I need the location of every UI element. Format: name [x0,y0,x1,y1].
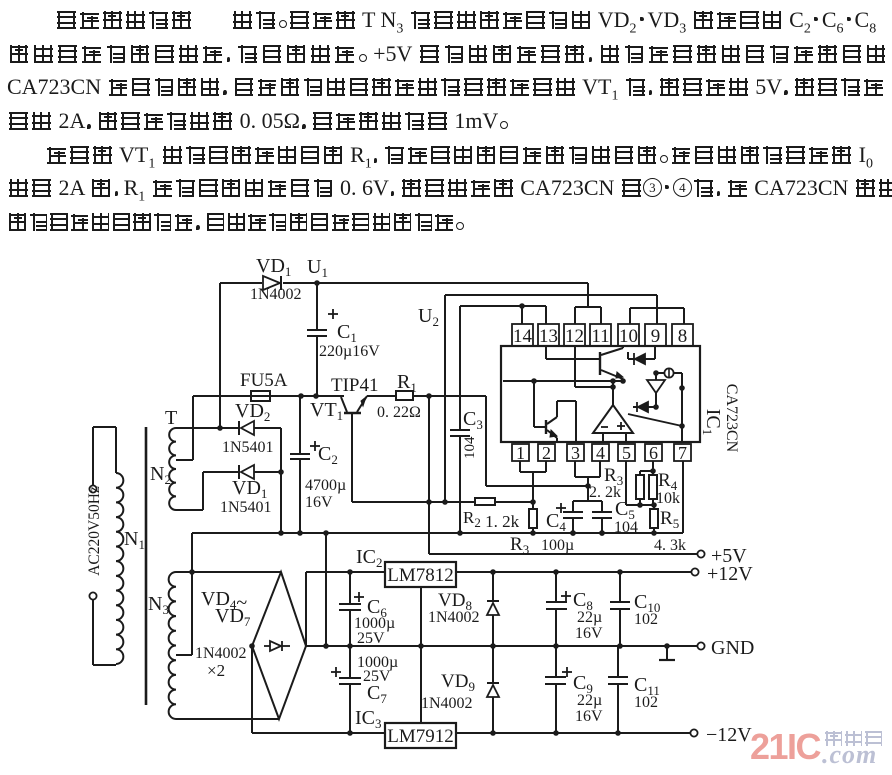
svg-text:7: 7 [678,443,687,463]
svg-text:T: T [165,407,177,429]
svg-text:4. 3k: 4. 3k [654,537,686,554]
svg-text:LM7912: LM7912 [387,726,454,747]
svg-text:VD1: VD1 [232,477,267,501]
svg-text:1N4002: 1N4002 [421,695,473,712]
svg-text:0. 22Ω: 0. 22Ω [377,404,421,421]
svg-text:R1: R1 [397,371,417,395]
svg-text:10: 10 [619,326,638,347]
svg-text:N2: N2 [150,463,171,487]
svg-text:IC3: IC3 [355,707,382,731]
svg-text:VD1: VD1 [256,255,291,279]
svg-text:IC1: IC1 [700,409,724,436]
svg-text:1N4002: 1N4002 [195,645,247,662]
svg-text:1: 1 [516,443,525,463]
svg-text:6: 6 [649,443,658,463]
svg-text:C1: C1 [337,321,357,345]
svg-text:104: 104 [462,436,478,459]
svg-text:14: 14 [513,326,533,347]
svg-text:TIP41: TIP41 [331,375,379,396]
svg-text:CA723CN: CA723CN [723,384,740,453]
svg-text:13: 13 [539,326,558,347]
svg-text:C3: C3 [463,408,483,432]
svg-text:3: 3 [571,443,580,463]
svg-text:−12V: −12V [706,724,752,746]
svg-text:LM7812: LM7812 [387,565,454,586]
svg-text:100µ: 100µ [541,537,574,554]
svg-text:12: 12 [565,326,584,347]
svg-text:1N4002: 1N4002 [250,286,302,303]
svg-text:N3: N3 [148,593,169,617]
svg-text:9: 9 [651,326,661,347]
svg-text:R5: R5 [660,508,679,531]
svg-text:16V: 16V [575,708,603,725]
svg-text:N1: N1 [124,528,145,552]
svg-text:C4: C4 [546,510,566,534]
svg-text:FU5A: FU5A [240,370,288,391]
svg-text:1N5401: 1N5401 [222,439,274,456]
svg-text:R3: R3 [510,534,529,557]
svg-text:1N5401: 1N5401 [220,499,272,516]
svg-text:VD9: VD9 [441,671,475,694]
svg-text:102: 102 [634,611,658,628]
svg-text:2: 2 [542,443,551,463]
svg-text:8: 8 [678,326,688,347]
svg-text:IC2: IC2 [356,546,383,570]
svg-text:4700µ: 4700µ [305,477,346,494]
svg-text:5: 5 [622,443,631,463]
svg-text:GND: GND [711,637,754,659]
svg-text:R2 1. 2k: R2 1. 2k [463,508,520,531]
svg-text:1N4002: 1N4002 [428,609,480,626]
svg-text:22µ: 22µ [577,692,602,709]
svg-text:C2: C2 [318,443,338,467]
svg-text:C7: C7 [367,682,387,706]
svg-text:+12V: +12V [707,563,753,585]
svg-text:16V: 16V [305,494,333,511]
svg-text:22µ: 22µ [577,609,602,626]
svg-text:10k: 10k [656,490,680,507]
svg-text:AC220V50Hz: AC220V50Hz [86,486,103,576]
svg-text:VD2: VD2 [235,400,270,424]
svg-text:U2: U2 [418,305,439,329]
svg-text:×2: ×2 [207,661,225,680]
svg-text:U1: U1 [307,256,328,280]
svg-text:220µ16V: 220µ16V [319,343,380,360]
svg-text:VT1: VT1 [310,399,343,423]
svg-text:25V: 25V [357,630,385,647]
svg-text:4: 4 [596,443,605,463]
svg-text:102: 102 [634,694,658,711]
svg-text:11: 11 [591,326,609,347]
svg-text:16V: 16V [575,625,603,642]
